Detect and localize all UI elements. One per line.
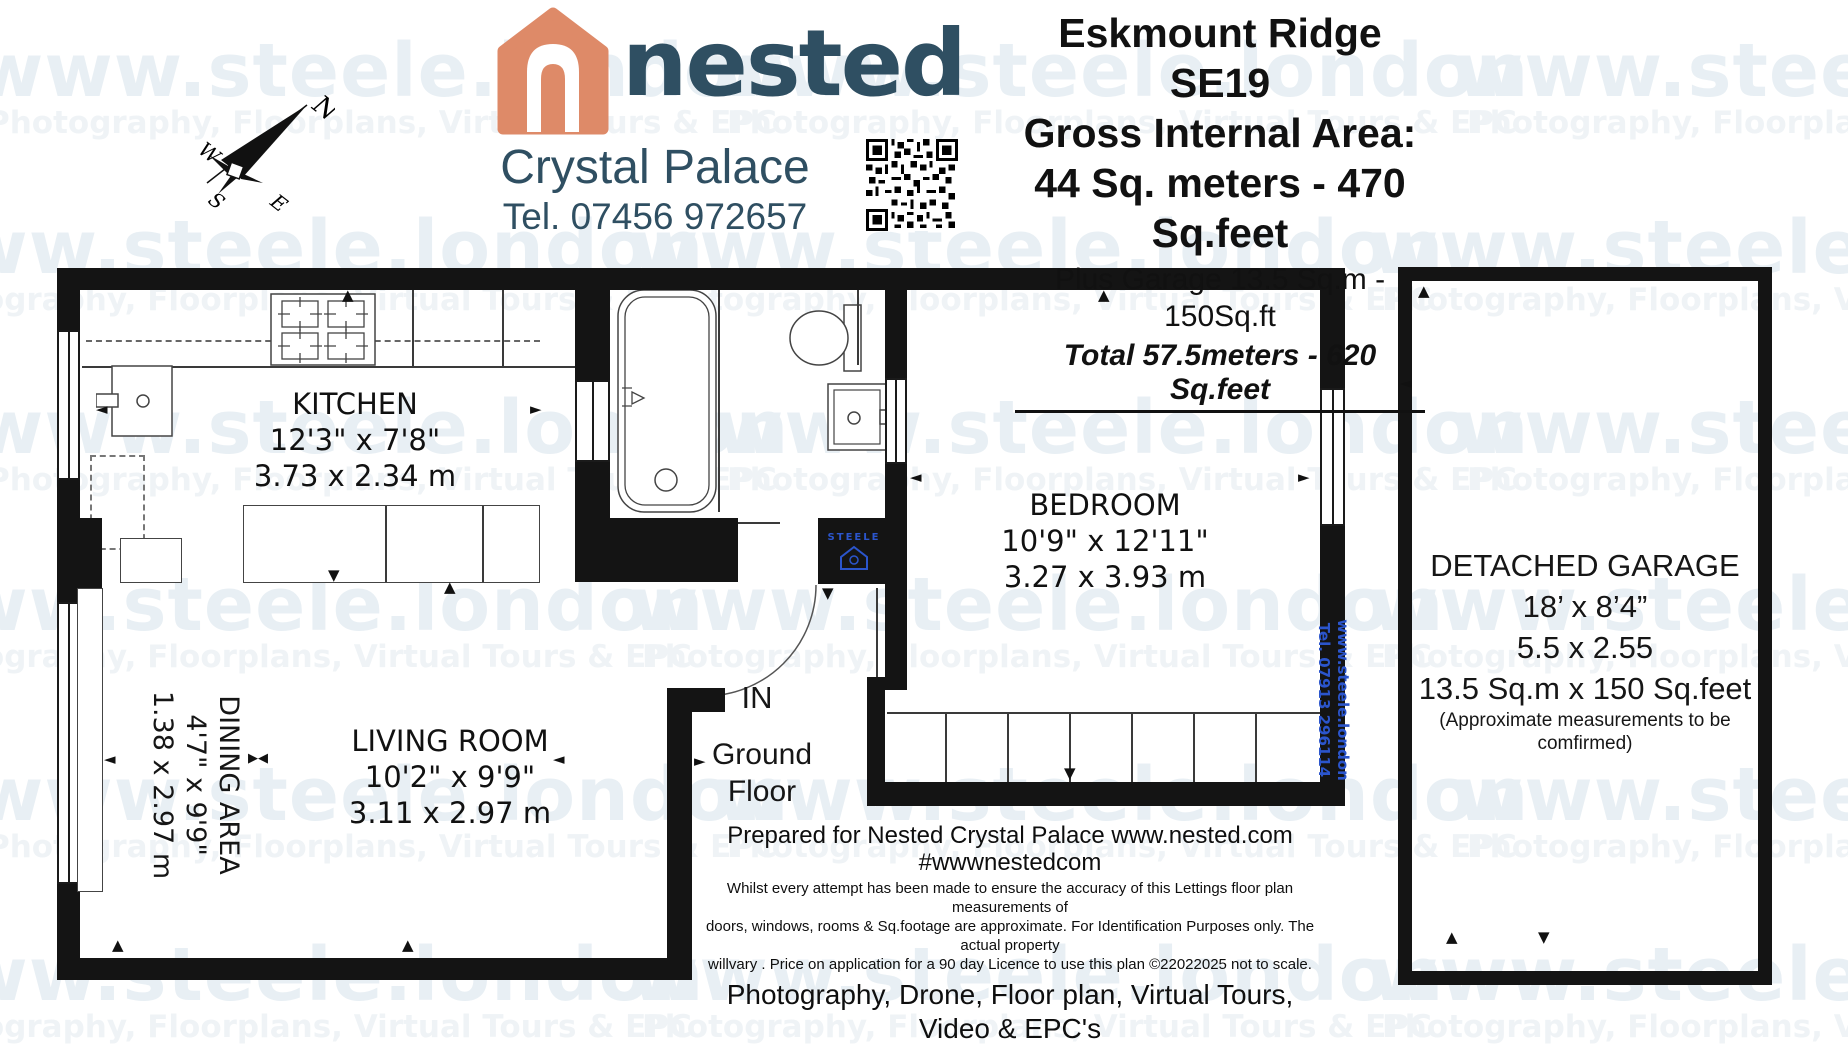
garage-area-line: Plus Garage 13.5 Sq.m - 150Sq.ft — [1015, 261, 1425, 335]
dimension-marker: ▲ — [402, 938, 414, 953]
wall — [57, 958, 692, 980]
disclaimer-legal-3: willvary . Price on application for a 90… — [698, 955, 1322, 974]
dimension-marker: ◄ — [553, 752, 565, 767]
living-room-metric: 3.11 x 2.97 m — [295, 795, 605, 831]
closet-divider — [1255, 712, 1257, 782]
kitchen-sink-icon — [96, 364, 176, 440]
kitchen-imperial: 12'3" x 7'8" — [200, 422, 510, 458]
dimension-marker: ► — [1298, 470, 1310, 485]
kitchen-metric: 3.73 x 2.34 m — [200, 458, 510, 494]
bathtub-icon — [616, 288, 718, 514]
dimension-marker: ▲ — [342, 288, 354, 303]
dimension-marker: ◄ — [96, 402, 108, 417]
brand-branch: Crystal Palace — [490, 140, 820, 195]
dimension-marker: ▼ — [1064, 766, 1076, 781]
dimension-marker: ◄ — [104, 752, 116, 767]
qr-code — [866, 137, 958, 233]
kitchen-label: KITCHEN 12'3" x 7'8" 3.73 x 2.34 m — [200, 386, 510, 494]
disclaimer-legal-2: doors, windows, rooms & Sq.footage are a… — [698, 917, 1322, 955]
dimension-marker: ► — [530, 402, 542, 417]
ground-floor-line1: Ground — [692, 736, 832, 773]
dimension-marker: ◄ — [1400, 376, 1412, 391]
garage-label: DETACHED GARAGE 18’ x 8’4” 5.5 x 2.55 13… — [1405, 545, 1765, 755]
entrance-in-label: IN — [712, 680, 802, 716]
dining-metric: 1.38 x 2.97 m — [146, 635, 179, 935]
dimension-marker: ▶◀ — [248, 752, 268, 765]
counter-divider-line — [502, 278, 504, 366]
watermark-subtext: Photography, Floorplans, Virtual Tours &… — [0, 829, 777, 865]
window — [57, 330, 80, 480]
gross-area-value: 44 Sq. meters - 470 Sq.feet — [1015, 158, 1425, 258]
steele-house-icon — [839, 545, 869, 571]
dining-name: DINING AREA — [212, 635, 245, 935]
window-sill — [77, 588, 103, 892]
wall — [885, 268, 907, 378]
counter-divider-line — [412, 278, 414, 366]
disclaimer-legal-1: Whilst every attempt has been made to en… — [698, 879, 1322, 917]
compass-south-label: S — [204, 187, 230, 214]
compass-rose-icon: N W S E — [185, 80, 335, 215]
wall-vertical-url: www.steele.london — [1333, 563, 1352, 837]
window-hatch — [575, 380, 610, 462]
disclaimer-block: Prepared for Nested Crystal Palace www.n… — [698, 822, 1322, 1046]
ground-floor-line2: Floor — [692, 773, 832, 810]
dimension-marker: ▼ — [822, 586, 834, 601]
garage-area: 13.5 Sq.m x 150 Sq.feet — [1405, 668, 1765, 709]
dimension-marker: ▲ — [112, 938, 124, 953]
dining-imperial: 4'7" x 9'9" — [179, 635, 212, 935]
bedroom-label: BEDROOM 10'9" x 12'11" 3.27 x 3.93 m — [950, 487, 1260, 595]
counter-divider-line — [482, 506, 484, 582]
disclaimer-services: Photography, Drone, Floor plan, Virtual … — [698, 978, 1322, 1046]
wall — [667, 688, 692, 980]
wall — [575, 268, 610, 380]
living-room-label: LIVING ROOM 10'2" x 9'9" 3.11 x 2.97 m — [295, 723, 605, 831]
dimension-marker: ▼ — [328, 568, 340, 583]
nested-logo-house-icon — [497, 6, 609, 136]
bedroom-name: BEDROOM — [950, 487, 1260, 523]
wall — [575, 518, 738, 582]
dimension-marker: ▲ — [1418, 284, 1430, 299]
watermark-subtext: Photography, Floorplans, Virtual Tours &… — [1382, 1009, 1848, 1045]
wall — [867, 677, 885, 783]
ground-floor-label: Ground Floor — [692, 736, 832, 810]
steele-wall-logo: STEELE — [818, 518, 890, 584]
kitchen-name: KITCHEN — [200, 386, 510, 422]
dining-label: DINING AREA 4'7" x 9'9" 1.38 x 2.97 m — [145, 635, 245, 935]
wall-vertical-tel: Tel. 07913 296114 — [1314, 563, 1333, 837]
watermark-subtext: Photography, Floorplans, Virtual Tours &… — [0, 1009, 692, 1045]
brand-phone: Tel. 07456 972657 — [490, 196, 820, 238]
compass-north-label: N — [306, 89, 335, 128]
garage-note: (Approximate measurements to be comfirme… — [1405, 709, 1765, 755]
counter-divider-line — [385, 506, 387, 582]
garage-imperial: 18’ x 8’4” — [1405, 586, 1765, 627]
watermark-subtext: Photography, Floorplans, Virtual Tours &… — [0, 639, 692, 675]
kitchen-unit — [120, 538, 182, 583]
hob-icon — [270, 293, 376, 366]
toilet-icon — [786, 303, 864, 373]
dimension-marker: ► — [694, 754, 706, 769]
floorplan-page: www.steele.londonPhotography, Floorplans… — [0, 0, 1848, 1046]
total-area-line: Total 57.5meters - 620 Sq.feet — [1015, 339, 1425, 413]
dimension-marker: ◄ — [910, 470, 922, 485]
watermark-subtext: Photography, Floorplans, Virtual Tours &… — [1467, 105, 1848, 141]
gross-area-heading: Gross Internal Area: — [1015, 108, 1425, 158]
dimension-marker: ▼ — [1538, 930, 1550, 945]
dimension-marker: ▲ — [444, 580, 456, 595]
header-info: Eskmount Ridge SE19 Gross Internal Area:… — [1015, 8, 1425, 413]
brand-name: nested — [622, 10, 965, 117]
closet-divider — [1131, 712, 1133, 782]
kitchen-counter — [243, 505, 540, 583]
closet-divider — [1193, 712, 1195, 782]
page-title: Eskmount Ridge SE19 — [1015, 8, 1425, 108]
compass-east-label: E — [265, 188, 292, 215]
closet-divider — [945, 712, 947, 782]
toilet-partition-line — [857, 285, 859, 365]
disclaimer-prepared: Prepared for Nested Crystal Palace www.n… — [698, 822, 1322, 876]
dimension-marker: ▲ — [1098, 288, 1110, 303]
bathroom-door-opening — [885, 378, 907, 464]
bath-screen-line — [718, 285, 720, 512]
watermark-text: www.steele.london — [1455, 28, 1848, 114]
dimension-marker: ▲ — [1446, 930, 1458, 945]
wall-vertical-branding: www.steele.london Tel. 07913 296114 — [1314, 563, 1352, 837]
garage-name: DETACHED GARAGE — [1405, 545, 1765, 586]
steele-wall-logo-text: STEELE — [828, 532, 881, 543]
garage-metric: 5.5 x 2.55 — [1405, 627, 1765, 668]
bedroom-metric: 3.27 x 3.93 m — [950, 559, 1260, 595]
bedroom-imperial: 10'9" x 12'11" — [950, 523, 1260, 559]
wall — [867, 782, 1345, 806]
closet-divider — [1007, 712, 1009, 782]
door-leaf-line — [738, 522, 780, 524]
